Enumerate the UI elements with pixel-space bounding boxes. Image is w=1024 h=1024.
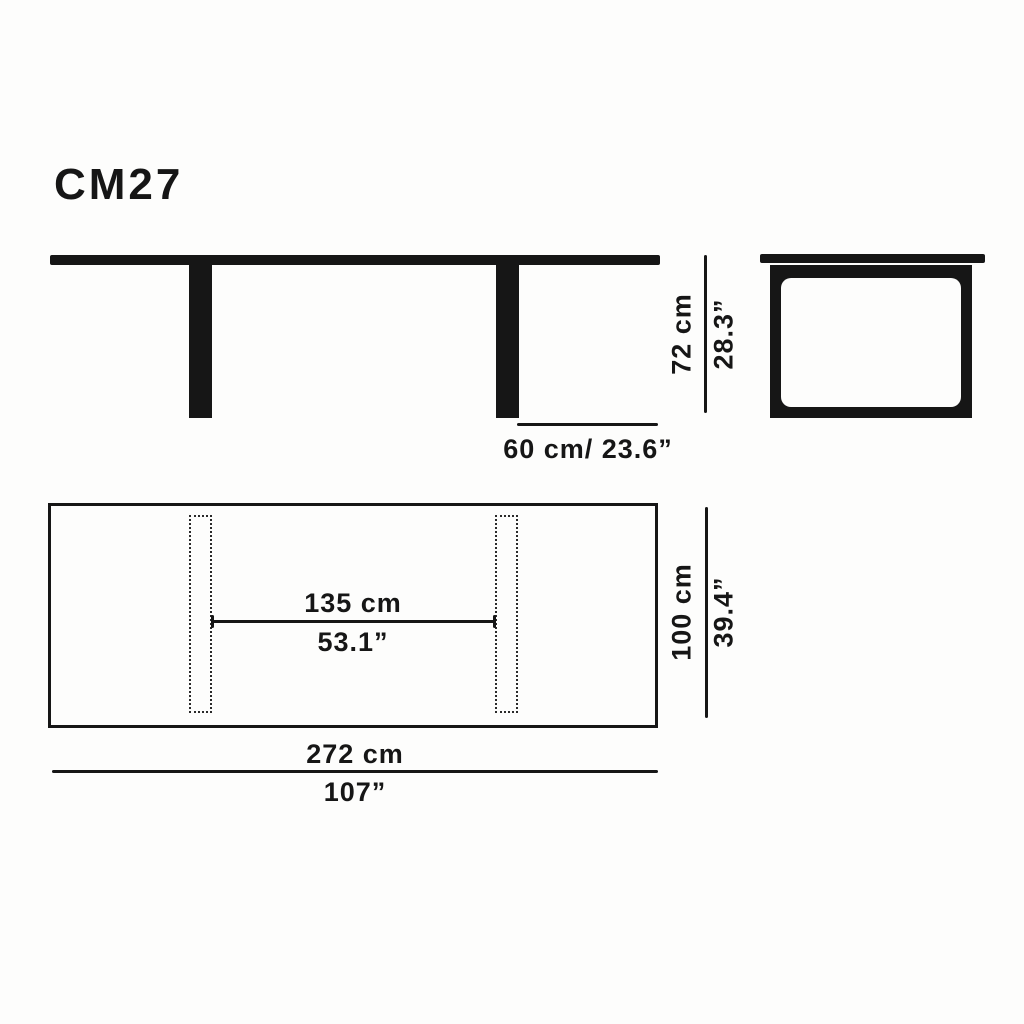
height-label-cm: 72 cm xyxy=(667,293,698,375)
height-dimension-line xyxy=(704,255,707,413)
height-label-inch: 28.3” xyxy=(709,298,740,369)
front-right-leg xyxy=(496,265,519,418)
dimension-drawing: CM27 72 cm 28.3” 60 cm/ 23.6” 135 cm 53.… xyxy=(0,0,1024,1024)
length-label-cm: 272 cm xyxy=(255,739,455,770)
side-leg-frame-opening xyxy=(781,278,961,407)
length-label-inch: 107” xyxy=(255,777,455,808)
leg-span-label-cm: 135 cm xyxy=(253,588,453,619)
side-leg-frame xyxy=(770,265,972,418)
leg-span-dimension-line xyxy=(212,620,495,623)
overhang-label: 60 cm/ 23.6” xyxy=(478,434,698,465)
depth-label-cm: 100 cm xyxy=(667,563,698,661)
product-title: CM27 xyxy=(54,160,183,210)
leg-span-left-tick xyxy=(211,615,214,628)
front-left-leg xyxy=(189,265,212,418)
plan-right-leg-hidden-line xyxy=(495,515,518,713)
length-dimension-line xyxy=(52,770,658,773)
depth-label-inch: 39.4” xyxy=(709,576,740,647)
overhang-dimension-line xyxy=(517,423,658,426)
side-tabletop xyxy=(760,254,985,263)
leg-span-right-tick xyxy=(493,615,496,628)
plan-left-leg-hidden-line xyxy=(189,515,212,713)
front-tabletop xyxy=(50,255,660,265)
leg-span-label-inch: 53.1” xyxy=(253,627,453,658)
